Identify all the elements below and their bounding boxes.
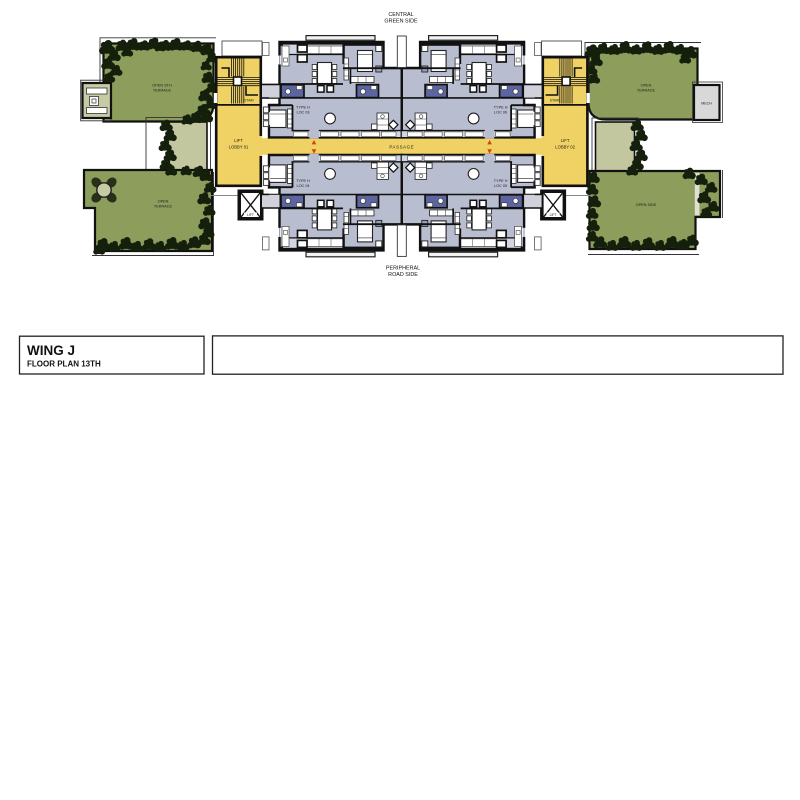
svg-text:OPEN: OPEN bbox=[158, 200, 169, 204]
svg-text:LOC 05: LOC 05 bbox=[494, 184, 507, 188]
svg-text:WING J: WING J bbox=[27, 343, 75, 358]
svg-text:TYPE H: TYPE H bbox=[296, 106, 310, 110]
svg-text:TYPE H: TYPE H bbox=[494, 106, 508, 110]
svg-text:MECH: MECH bbox=[701, 102, 712, 106]
svg-text:OPEN SIDE: OPEN SIDE bbox=[636, 203, 657, 207]
svg-text:LIFT: LIFT bbox=[561, 138, 570, 143]
svg-text:TYPE H: TYPE H bbox=[296, 179, 310, 183]
svg-text:ROAD SIDE: ROAD SIDE bbox=[388, 272, 418, 278]
svg-text:LIFT: LIFT bbox=[247, 213, 254, 217]
svg-text:LIFT: LIFT bbox=[234, 138, 243, 143]
svg-text:PASSAGE: PASSAGE bbox=[389, 144, 414, 149]
svg-text:LIFT: LIFT bbox=[550, 213, 557, 217]
svg-text:TERRACE: TERRACE bbox=[154, 205, 173, 209]
svg-text:LOC 03: LOC 03 bbox=[296, 111, 309, 115]
svg-text:OPEN: OPEN bbox=[641, 84, 652, 88]
svg-text:LOC 04: LOC 04 bbox=[296, 184, 309, 188]
svg-text:GREEN SIDE: GREEN SIDE bbox=[384, 18, 418, 24]
svg-text:STAIR: STAIR bbox=[550, 99, 560, 103]
svg-text:STAIR: STAIR bbox=[244, 99, 254, 103]
svg-text:LOC 06: LOC 06 bbox=[494, 111, 507, 115]
svg-text:LOBBY 01: LOBBY 01 bbox=[229, 145, 249, 150]
svg-text:TERRACE: TERRACE bbox=[153, 89, 172, 93]
svg-text:FLOOR PLAN 13TH: FLOOR PLAN 13TH bbox=[27, 360, 101, 369]
svg-text:TYPE H: TYPE H bbox=[494, 179, 508, 183]
svg-text:OPEN STH: OPEN STH bbox=[152, 84, 172, 88]
svg-text:TERRACE: TERRACE bbox=[637, 89, 656, 93]
svg-text:PERIPHERAL: PERIPHERAL bbox=[386, 266, 420, 272]
svg-text:LOBBY 02: LOBBY 02 bbox=[555, 145, 575, 150]
svg-text:CENTRAL: CENTRAL bbox=[388, 12, 413, 18]
